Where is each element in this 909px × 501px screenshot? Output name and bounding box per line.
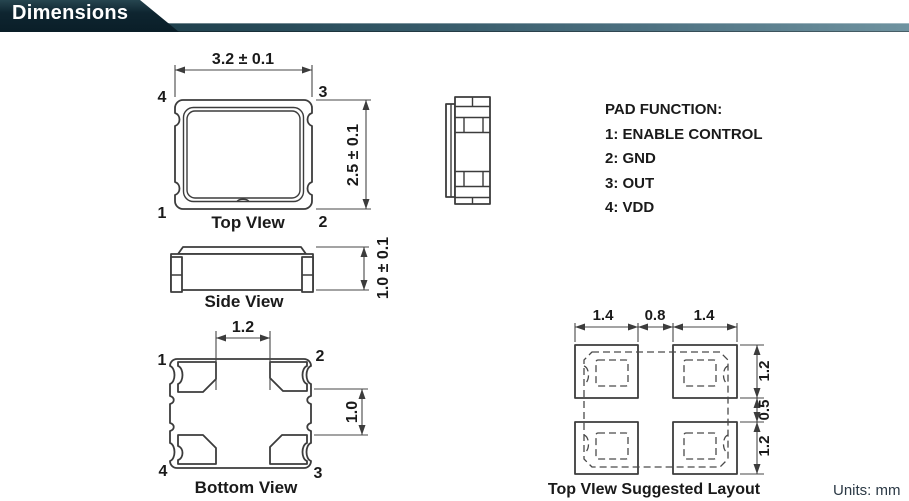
top-view-body-outline [175,100,312,209]
layout-dim-gap-width-label: 0.8 [645,307,666,324]
layout-width-ext-lines [575,323,737,342]
layout-pad-inner-dashed-bottom-right [684,433,716,459]
layout-dim-pad-height-bottom-label: 1.2 [756,436,773,457]
pad-function-item-2: 2: GND [605,150,656,167]
side-view-lid [178,247,306,254]
end-view-body [455,97,490,204]
bottom-view-pin-1: 1 [158,352,167,369]
side-view: 1.0 ± 0.1 Side View [171,237,392,311]
top-view-height-dim-label: 2.5 ± 0.1 [345,124,362,186]
top-view-label: Top VIew [211,213,285,232]
bottom-view: 1.2 1.0 1 2 4 3 Bottom View [158,319,368,497]
side-view-body [171,254,313,290]
units-note: Units: mm [833,482,901,499]
top-view-pin-2: 2 [319,214,328,231]
layout-pad-inner-dashed-top-left [596,360,628,386]
bottom-view-pin-4: 4 [159,463,168,480]
end-view [446,97,490,204]
top-view-pin-4: 4 [158,89,167,106]
side-view-height-dim-label: 1.0 ± 0.1 [375,237,392,299]
bottom-view-gap-width-dim-label: 1.2 [232,319,254,336]
top-view: 3.2 ± 0.1 2.5 ± 0.1 4 3 1 2 Top VIew [158,51,371,232]
side-view-label: Side View [204,292,284,311]
bottom-view-pin-2: 2 [316,348,325,365]
layout-component-outline-dashed [584,352,728,467]
layout-pad-inner-dashed-bottom-left [596,433,628,459]
layout-dim-gap-height-label: 0.5 [756,400,773,421]
top-view-pin-1: 1 [158,205,167,222]
bottom-view-body-outline [170,359,311,468]
pad-function-title: PAD FUNCTION: [605,101,722,118]
bottom-view-pin-3: 3 [314,465,323,482]
bottom-view-label: Bottom View [195,478,298,497]
layout-dim-pad-width-left-label: 1.4 [593,307,615,324]
pad-function-legend: PAD FUNCTION: 1: ENABLE CONTROL 2: GND 3… [605,101,763,216]
dimensions-drawing: 3.2 ± 0.1 2.5 ± 0.1 4 3 1 2 Top VIew 1.0… [0,0,909,501]
suggested-layout: 1.4 0.8 1.4 1.2 0.5 1.2 Top VIew Suggest… [548,307,773,498]
layout-dim-pad-width-right-label: 1.4 [694,307,716,324]
suggested-layout-label: Top VIew Suggested Layout [548,481,761,498]
layout-dim-pad-height-top-label: 1.2 [756,361,773,382]
bottom-view-gap-height-dim-label: 1.0 [344,401,361,423]
layout-pad-inner-dashed-top-right [684,360,716,386]
side-view-height-ext-lines [316,247,369,290]
pad-function-item-1: 1: ENABLE CONTROL [605,126,763,143]
top-view-height-ext-lines [316,100,371,209]
pad-function-item-3: 3: OUT [605,175,654,192]
layout-castellations-dashed [584,366,728,453]
top-view-width-dim-label: 3.2 ± 0.1 [212,51,274,68]
pad-function-item-4: 4: VDD [605,199,654,216]
top-view-pin-3: 3 [319,84,328,101]
